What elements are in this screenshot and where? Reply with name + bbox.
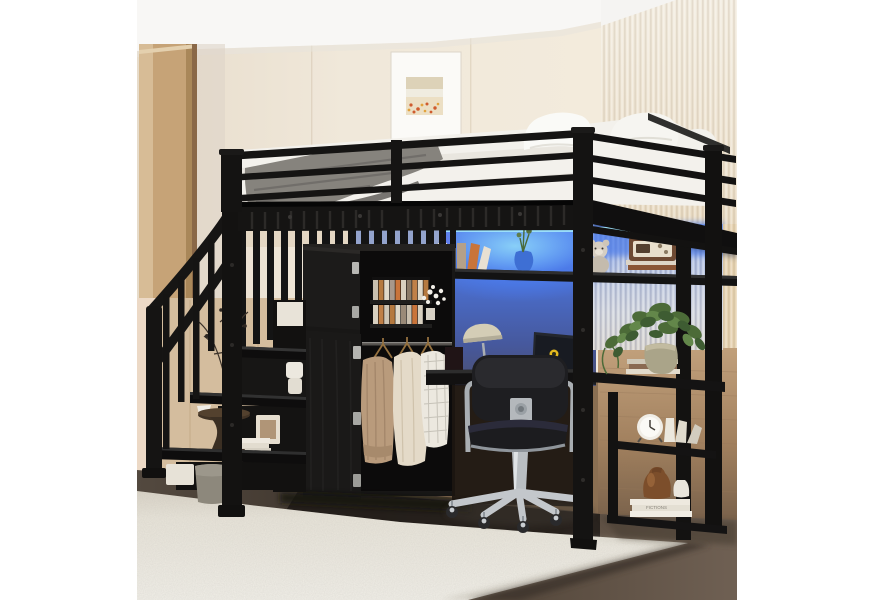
svg-text:FICTIONS: FICTIONS [646, 505, 667, 510]
